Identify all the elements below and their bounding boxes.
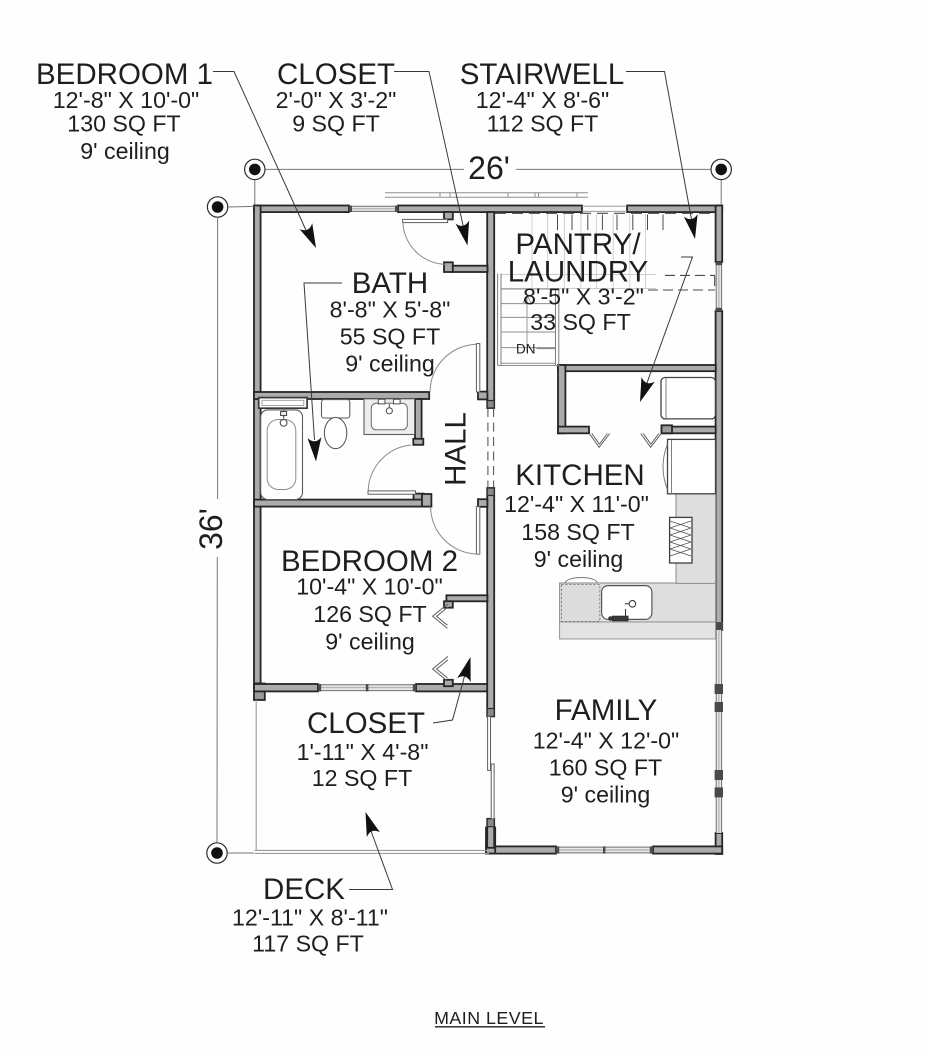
svg-text:12 SQ FT: 12 SQ FT [312, 765, 413, 791]
svg-text:117 SQ FT: 117 SQ FT [252, 931, 364, 957]
svg-text:DECK: DECK [263, 873, 345, 906]
svg-text:1'-11" X 4'-8": 1'-11" X 4'-8" [297, 739, 429, 765]
svg-text:FAMILY: FAMILY [555, 694, 658, 727]
svg-text:DN: DN [516, 342, 536, 357]
svg-text:36': 36' [193, 508, 229, 550]
svg-text:2'-0" X 3'-2": 2'-0" X 3'-2" [276, 87, 397, 113]
svg-text:MAIN LEVEL: MAIN LEVEL [434, 1008, 544, 1028]
svg-text:126 SQ FT: 126 SQ FT [313, 601, 426, 627]
svg-text:112 SQ FT: 112 SQ FT [487, 111, 599, 137]
svg-text:9' ceiling: 9' ceiling [561, 782, 651, 808]
svg-text:130 SQ FT: 130 SQ FT [67, 111, 180, 137]
svg-text:9' ceiling: 9' ceiling [80, 138, 170, 164]
svg-text:55 SQ FT: 55 SQ FT [340, 324, 441, 350]
svg-text:12'-11" X 8'-11": 12'-11" X 8'-11" [232, 905, 388, 931]
svg-text:8'-5" X 3'-2": 8'-5" X 3'-2" [523, 284, 644, 310]
svg-text:26': 26' [468, 150, 510, 186]
svg-text:9' ceiling: 9' ceiling [345, 351, 435, 377]
svg-text:KITCHEN: KITCHEN [515, 459, 644, 492]
svg-text:10'-4" X 10'-0": 10'-4" X 10'-0" [296, 574, 442, 600]
svg-text:8'-8" X 5'-8": 8'-8" X 5'-8" [330, 297, 451, 323]
svg-text:9 SQ FT: 9 SQ FT [292, 111, 380, 137]
svg-text:9' ceiling: 9' ceiling [534, 546, 624, 572]
svg-text:9' ceiling: 9' ceiling [325, 629, 415, 655]
svg-text:12'-4" X 8'-6": 12'-4" X 8'-6" [476, 87, 610, 113]
svg-text:12'-4" X 12'-0": 12'-4" X 12'-0" [533, 728, 679, 754]
svg-text:CLOSET: CLOSET [307, 707, 425, 740]
svg-text:158 SQ FT: 158 SQ FT [521, 519, 634, 545]
svg-text:12'-8" X 10'-0": 12'-8" X 10'-0" [53, 87, 199, 113]
svg-text:HALL: HALL [440, 412, 473, 486]
svg-text:33 SQ FT: 33 SQ FT [530, 309, 631, 335]
svg-text:12'-4" X 11'-0": 12'-4" X 11'-0" [504, 491, 649, 517]
svg-text:160 SQ FT: 160 SQ FT [549, 755, 662, 781]
svg-text:BATH: BATH [352, 267, 429, 300]
